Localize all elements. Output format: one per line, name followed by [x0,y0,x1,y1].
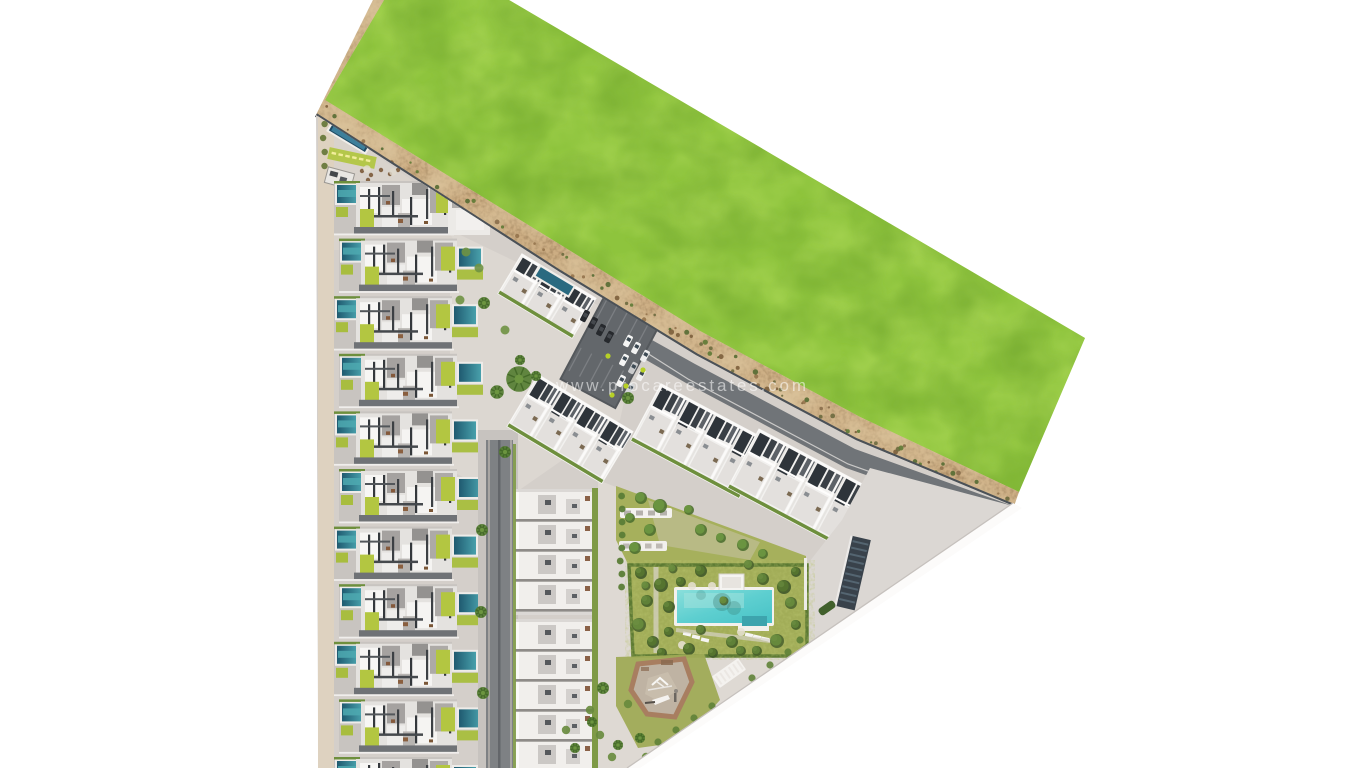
svg-text:www.procareestates.com: www.procareestates.com [555,376,806,395]
